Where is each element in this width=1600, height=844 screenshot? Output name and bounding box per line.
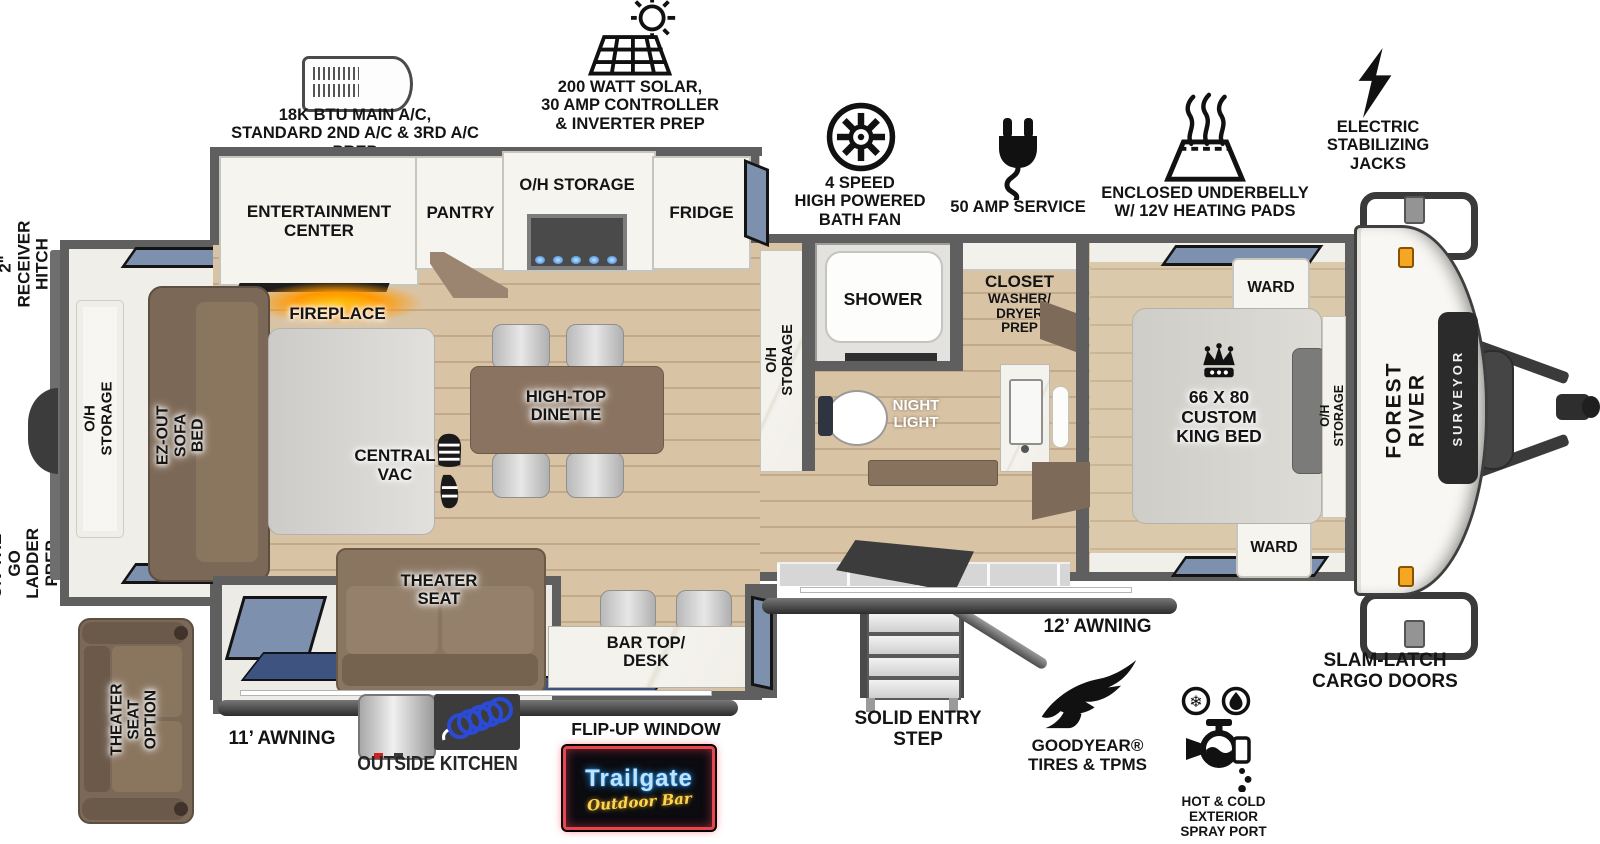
shower-label: SHOWER (815, 290, 951, 310)
closet-shelf (963, 243, 1076, 271)
wall-left-upper (210, 147, 219, 245)
toilet (826, 390, 888, 446)
marker-light (1398, 566, 1414, 587)
theater-seat-sofa (336, 548, 546, 694)
spray-port-label: HOT & COLD EXTERIOR SPRAY PORT (1146, 794, 1301, 839)
step-tread (867, 678, 961, 700)
burner-flame (607, 256, 617, 264)
goodyear-wingfoot-icon (1036, 656, 1140, 736)
wardrobe-label: WARD (1250, 539, 1297, 556)
burner-flame (589, 256, 599, 264)
sink-vanity (1000, 364, 1050, 472)
kitchen-corner-window (744, 159, 769, 247)
sink-basin (1009, 379, 1043, 445)
callout-underbelly: ENCLOSED UNDERBELLY W/ 12V HEATING PADS (1100, 184, 1310, 221)
dinette-label: HIGH-TOP DINETTE (474, 388, 658, 425)
shower-closet-divider (950, 243, 963, 361)
callout-ladder-prep: ON-THE-GO LADDER PREP (2, 438, 46, 688)
burner-flame (571, 256, 581, 264)
stabilizer-jack-latch (1404, 620, 1425, 648)
hallway-cabinet (868, 460, 998, 486)
boot-print-icon (432, 432, 466, 512)
burner-flame (553, 256, 563, 264)
outside-kitchen-label: OUTSIDE KITCHEN (345, 752, 530, 775)
sofa-knob (174, 802, 188, 816)
wardrobe-front: WARD (1236, 518, 1312, 578)
fireplace-label: FIREPLACE (255, 304, 420, 323)
svg-text:❄: ❄ (1189, 694, 1202, 711)
spray-port-icon: ❄ (1172, 686, 1272, 792)
rear-oh-storage-label: O/H STORAGE (76, 300, 122, 536)
callout-stabilizing-jacks: ELECTRIC STABILIZING JACKS (1313, 118, 1443, 173)
bath-bed-divider-wall (1076, 243, 1089, 572)
pantry: PANTRY (415, 156, 506, 270)
shower-bottom-wall (802, 361, 963, 371)
awning-11-label: 11’ AWNING (222, 728, 342, 749)
king-bed-label: 66 X 80 CUSTOM KING BED (1144, 388, 1294, 447)
floorplan-diagram: 18K BTU MAIN A/C, STANDARD 2ND A/C & 3RD… (0, 0, 1600, 844)
bath-fan-icon (824, 100, 898, 174)
theater-seat-label: THEATER SEAT (360, 572, 518, 609)
ac-vent-lines (313, 67, 359, 80)
sink-faucet (1021, 445, 1029, 453)
make-wordmark: FOREST RIVER (1388, 300, 1424, 520)
goodyear-label: GOODYEAR® TIRES & TPMS (1010, 736, 1165, 774)
flip-up-window-label: FLIP-UP WINDOW (566, 720, 726, 740)
crown-icon (1198, 342, 1240, 382)
bed-oh-storage-label: O/H STORAGE (1320, 316, 1346, 516)
step-rail (860, 610, 867, 698)
step-tread (867, 656, 961, 678)
solid-entry-step-label: SOLID ENTRY STEP (838, 708, 998, 751)
awning-12-label: 12’ AWNING (1015, 616, 1180, 637)
entertainment-center-label: ENTERTAINMENT CENTER (247, 202, 391, 240)
step-tread (867, 634, 961, 656)
callout-bath-fan: 4 SPEED HIGH POWERED BATH FAN (770, 174, 950, 229)
wall-top-living (210, 147, 762, 156)
solar-panel-icon (583, 0, 679, 78)
theater-seat-back (342, 654, 538, 686)
shower-door-track (845, 353, 937, 361)
hitch-ball-cover (1582, 396, 1600, 418)
toilet-tank (818, 396, 833, 436)
entry-steps (860, 610, 964, 706)
heated-underbelly-icon (1156, 92, 1254, 184)
stabilizer-jack-latch (1404, 196, 1425, 224)
dinette-chair (492, 324, 550, 370)
awning-rail (800, 587, 1132, 593)
coiled-hose (438, 696, 518, 756)
sofa-knob (174, 626, 188, 640)
bar-sign-title: Trailgate (585, 765, 693, 793)
bar-top-desk-label: BAR TOP/ DESK (552, 634, 740, 671)
ac-unit-icon (302, 56, 413, 112)
pantry-label: PANTRY (427, 203, 495, 222)
marker-light (1398, 247, 1414, 268)
burner-flame (535, 256, 545, 264)
closet-label: CLOSET (963, 272, 1076, 291)
fridge-label: FRIDGE (669, 203, 733, 222)
night-light-label: NIGHT LIGHT (880, 398, 952, 432)
bath-left-wall (802, 243, 815, 471)
dinette-chair (566, 324, 624, 370)
central-vac-label: CENTRAL VAC (352, 446, 438, 484)
theater-seat-option-label: THEATER SEAT OPTION (94, 640, 174, 800)
bar-sign-subtitle: Outdoor Bar (586, 789, 692, 814)
sofa-bed-label: EZ-OUT SOFA BED (150, 330, 212, 540)
bath-oh-storage-label: O/H STORAGE (760, 250, 802, 470)
ac-vent-lines (313, 84, 359, 97)
cooktop (527, 214, 627, 270)
awning-12-tube (762, 598, 1177, 614)
model-wordmark: SURVEYOR (1438, 312, 1478, 484)
slam-latch-label: SLAM-LATCH CARGO DOORS (1305, 650, 1465, 693)
dinette-chair (566, 452, 624, 498)
towel-bar (1052, 386, 1069, 448)
entertainment-center: ENTERTAINMENT CENTER (219, 156, 419, 286)
wall-top-front (745, 234, 1354, 243)
callout-solar: 200 WATT SOLAR, 30 AMP CONTROLLER & INVE… (515, 78, 745, 133)
kitchen-oh-storage-label: O/H STORAGE (502, 176, 652, 194)
callout-receiver-hitch: 2" RECEIVER HITCH (2, 148, 46, 380)
step-tread (867, 612, 961, 634)
outdoor-bar-sign: Trailgate Outdoor Bar (563, 746, 715, 830)
dinette-chair (492, 452, 550, 498)
sofa-arm (82, 798, 186, 820)
fridge: FRIDGE (652, 156, 751, 270)
wardrobe-label: WARD (1247, 279, 1294, 296)
callout-amp-service: 50 AMP SERVICE (928, 198, 1108, 216)
power-plug-icon (990, 116, 1046, 200)
lightning-bolt-icon (1352, 48, 1398, 118)
ez-out-bed-platform (268, 328, 435, 535)
